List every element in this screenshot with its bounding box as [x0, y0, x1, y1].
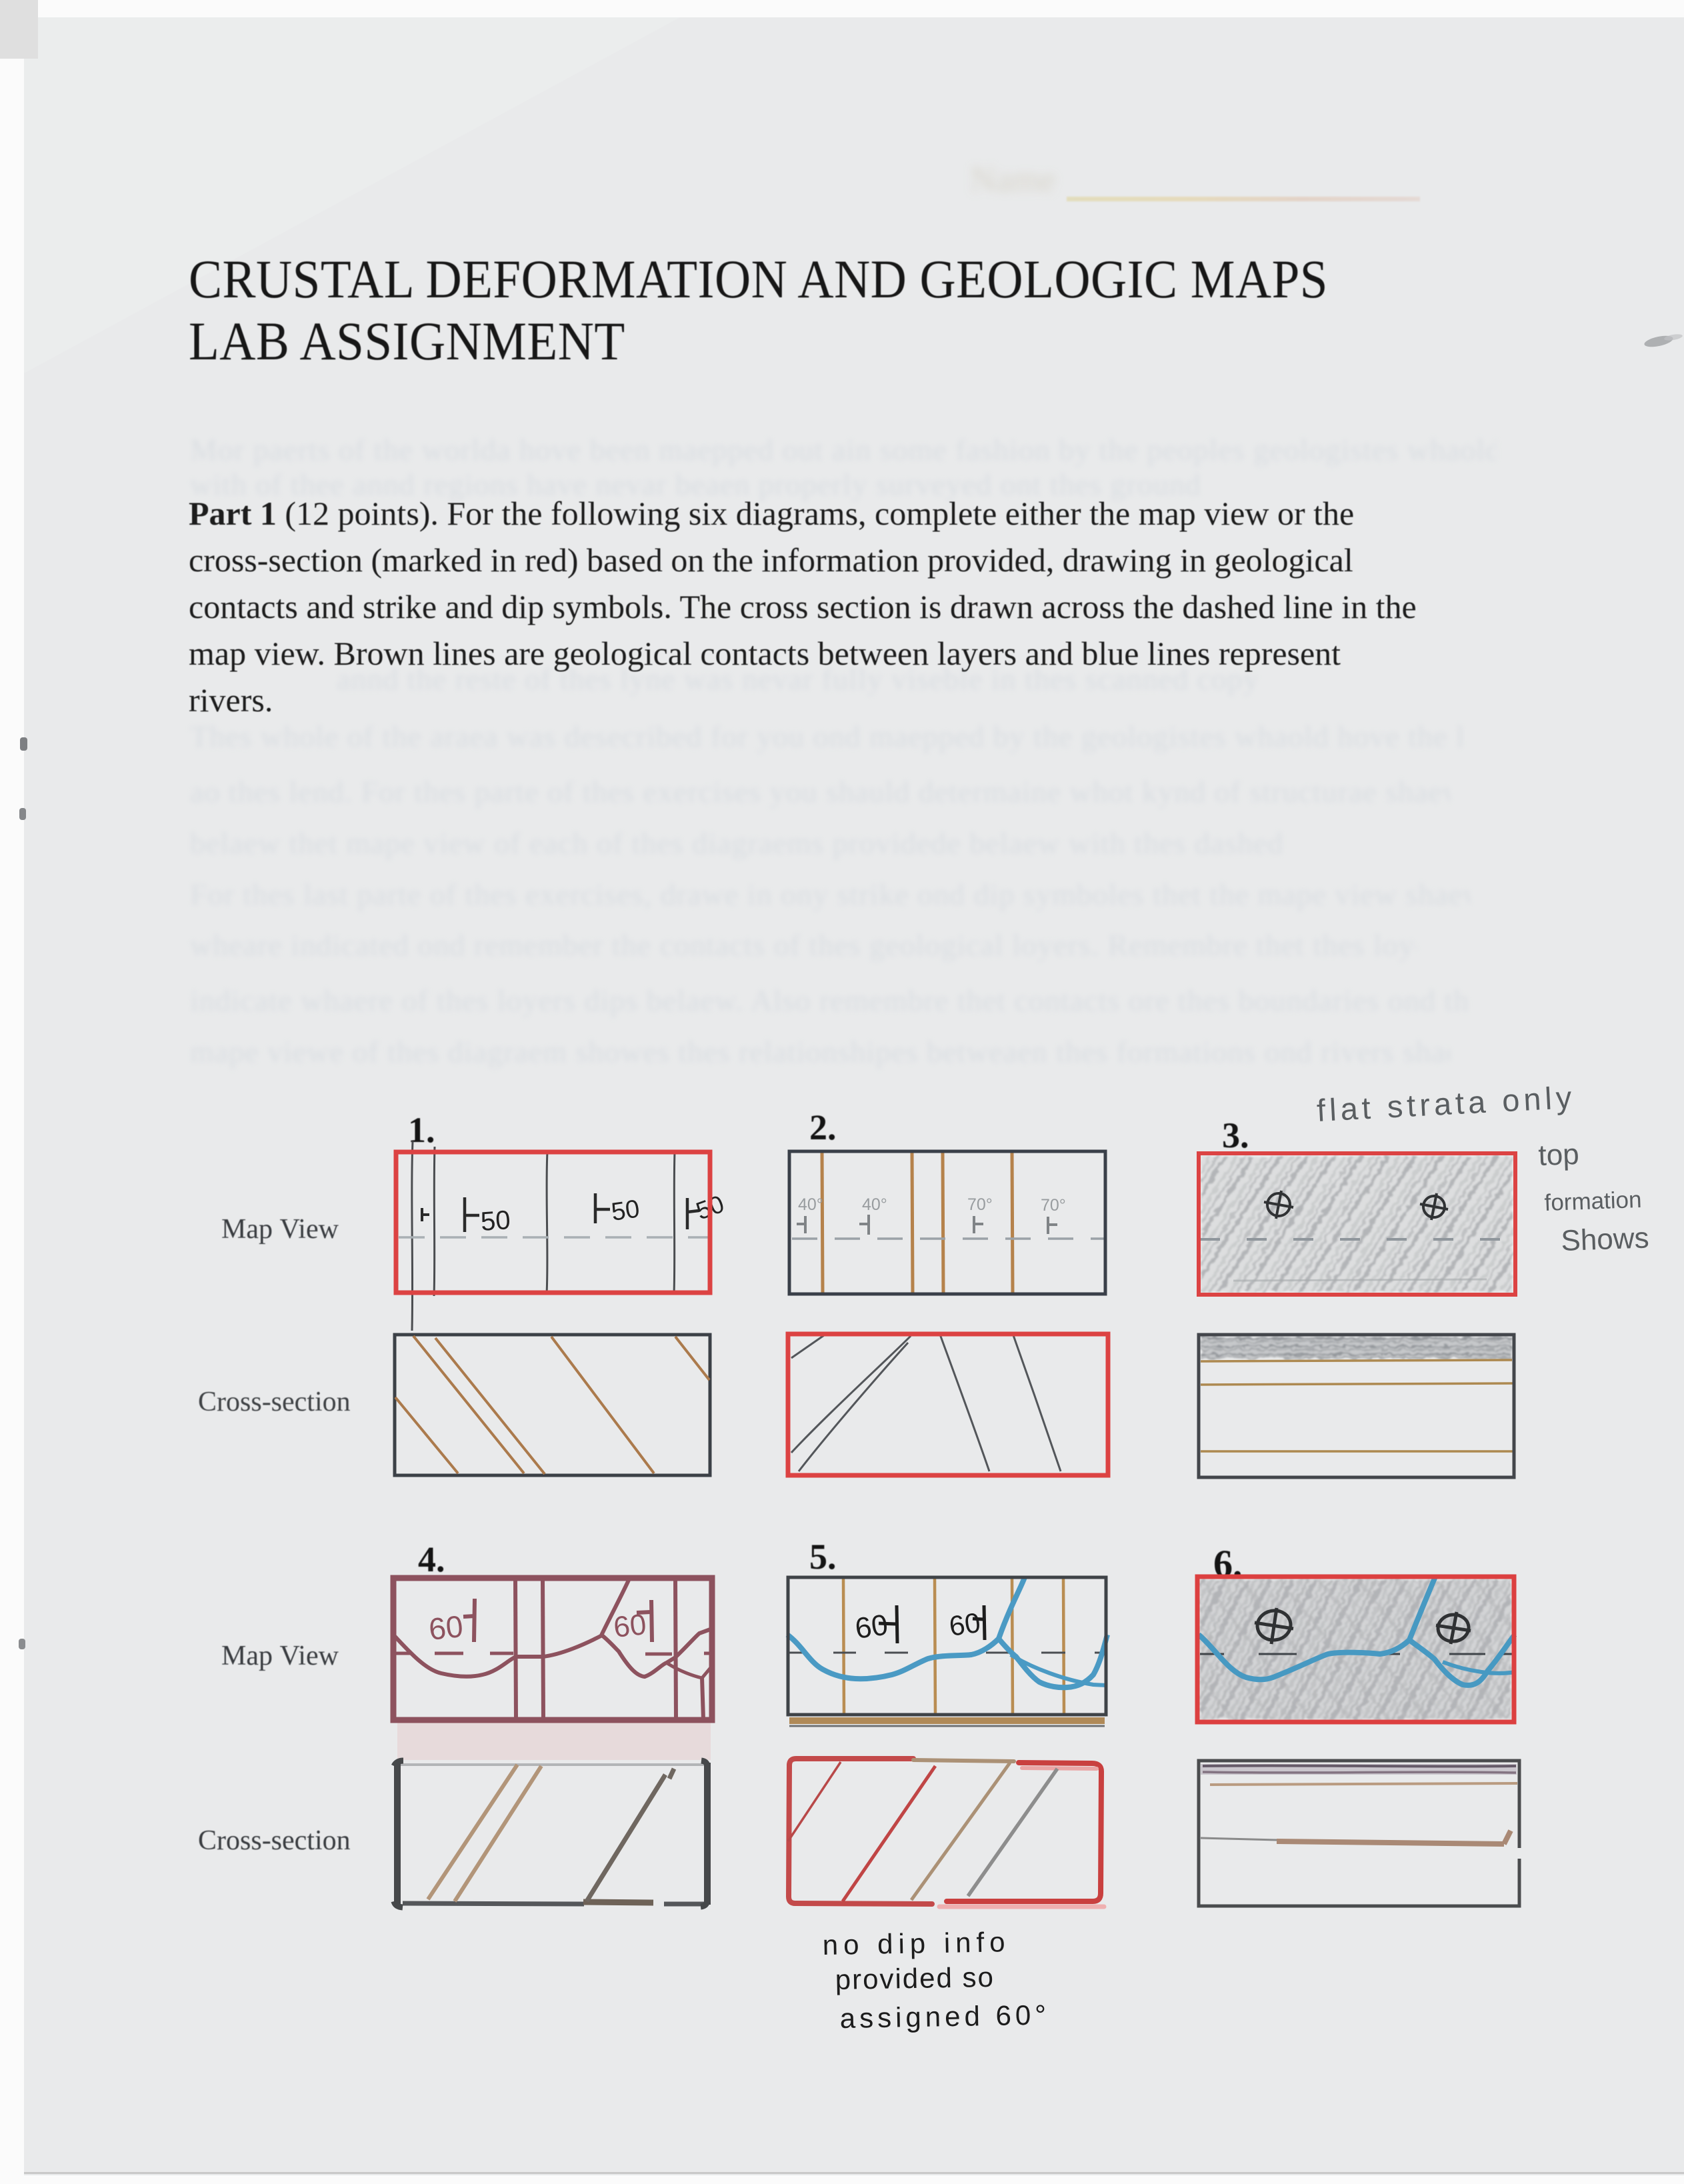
svg-text:50: 50	[480, 1205, 511, 1237]
svg-text:flat strata only: flat strata only	[1316, 1079, 1577, 1128]
svg-text:no dip info: no dip info	[822, 1926, 1011, 1961]
svg-text:formation: formation	[1544, 1187, 1642, 1216]
svg-text:Shows: Shows	[1561, 1221, 1650, 1257]
svg-text:60: 60	[947, 1607, 983, 1642]
svg-text:top: top	[1538, 1138, 1580, 1172]
svg-text:provided so: provided so	[835, 1961, 995, 1995]
svg-text:70°: 70°	[967, 1195, 993, 1214]
svg-text:40°: 40°	[862, 1195, 887, 1214]
svg-text:40°: 40°	[798, 1195, 823, 1214]
svg-text:70°: 70°	[1041, 1196, 1066, 1215]
svg-text:60: 60	[427, 1609, 465, 1647]
svg-text:assigned 60°: assigned 60°	[839, 1999, 1050, 2034]
svg-text:60: 60	[853, 1609, 890, 1645]
svg-text:50: 50	[609, 1195, 641, 1226]
